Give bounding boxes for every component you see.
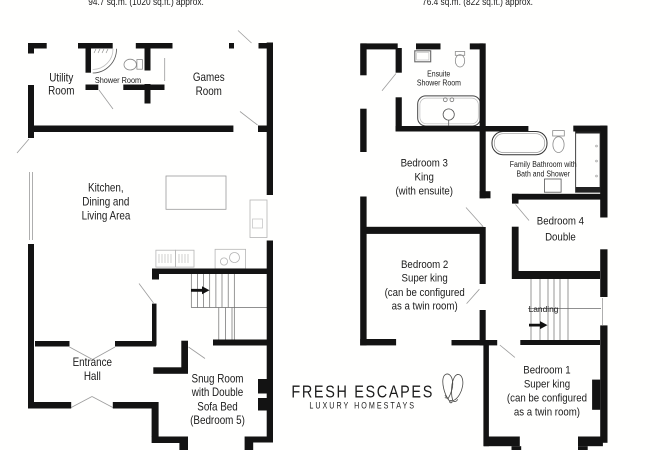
svg-text:76.4 sq.m. (822 sq.ft.) approx: 76.4 sq.m. (822 sq.ft.) approx. — [422, 0, 533, 7]
svg-text:94.7 sq.m. (1020 sq.ft.) appro: 94.7 sq.m. (1020 sq.ft.) approx. — [88, 0, 204, 7]
svg-text:as a twin room): as a twin room) — [514, 406, 580, 419]
svg-text:Bedroom 3: Bedroom 3 — [401, 157, 448, 170]
svg-text:Hall: Hall — [84, 370, 101, 383]
svg-text:(can be configured: (can be configured — [507, 392, 587, 405]
svg-text:with Double: with Double — [191, 386, 243, 399]
svg-text:Family Bathroom with: Family Bathroom with — [510, 160, 577, 170]
svg-text:Room: Room — [48, 85, 74, 98]
svg-text:Shower Room: Shower Room — [95, 75, 142, 85]
svg-text:Living Area: Living Area — [82, 210, 131, 223]
svg-text:LUXURY HOMESTAYS: LUXURY HOMESTAYS — [309, 400, 416, 410]
svg-text:Entrance: Entrance — [73, 356, 112, 369]
svg-text:Super king: Super king — [524, 378, 570, 391]
svg-text:Bath and Shower: Bath and Shower — [517, 169, 571, 179]
svg-text:(can be configured: (can be configured — [385, 286, 465, 299]
svg-text:Room: Room — [196, 85, 222, 98]
svg-text:Utility: Utility — [49, 72, 74, 85]
svg-text:Double: Double — [545, 231, 576, 244]
svg-text:(with ensuite): (with ensuite) — [395, 185, 453, 198]
svg-text:Bedroom 1: Bedroom 1 — [523, 364, 570, 377]
svg-text:as a twin room): as a twin room) — [392, 300, 458, 313]
svg-text:Dining and: Dining and — [82, 196, 129, 209]
svg-text:Games: Games — [193, 71, 225, 84]
svg-text:Sofa Bed: Sofa Bed — [197, 401, 238, 414]
svg-text:King: King — [415, 171, 434, 184]
svg-text:Super king: Super king — [402, 272, 448, 285]
svg-text:Bedroom 4: Bedroom 4 — [537, 215, 584, 228]
svg-text:FRESH ESCAPES: FRESH ESCAPES — [291, 382, 434, 402]
svg-text:Shower Room: Shower Room — [417, 78, 461, 88]
svg-text:Bedroom 2: Bedroom 2 — [401, 258, 448, 271]
svg-text:Snug Room: Snug Room — [192, 373, 244, 386]
svg-text:(Bedroom 5): (Bedroom 5) — [190, 415, 245, 428]
svg-text:Landing: Landing — [529, 304, 559, 314]
svg-text:Kitchen,: Kitchen, — [88, 182, 124, 195]
